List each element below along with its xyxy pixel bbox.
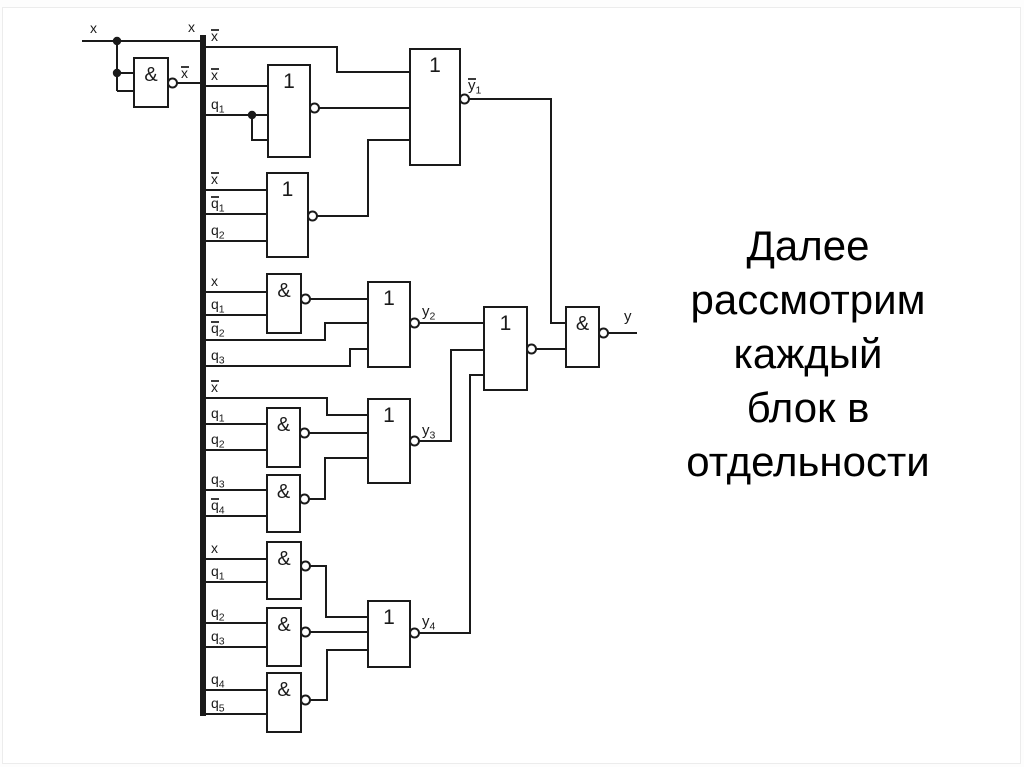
wire-tap-q3-to-or-y2 bbox=[206, 349, 368, 366]
inversion-bubble-and-y4-1 bbox=[301, 562, 310, 571]
wire-and-y4-1-out bbox=[301, 566, 368, 617]
inversion-bubble-and-y4-2 bbox=[301, 628, 310, 637]
wire-ybar1-to-and-y bbox=[460, 99, 566, 323]
gate-symbol-and-y4-2: & bbox=[277, 614, 291, 636]
label-tap-x-1: x bbox=[211, 273, 218, 289]
label-tap-q3-2: q3 bbox=[211, 471, 225, 491]
caption-text: Далеерассмотримкаждыйблок вотдельности bbox=[642, 219, 974, 489]
label-out-ybar1: y1 bbox=[468, 77, 482, 97]
wire-and-y3-2-out bbox=[300, 458, 368, 499]
gate-symbol-or-y: 1 bbox=[500, 312, 512, 335]
label-tap-x-2: x bbox=[211, 540, 218, 556]
gate-symbol-or-y4: 1 bbox=[383, 606, 395, 629]
label-tap-q1-3: q1 bbox=[211, 405, 225, 425]
inversion-bubble-and-y3-1 bbox=[300, 429, 309, 438]
inversion-bubble-and-y bbox=[599, 329, 608, 338]
inversion-bubble-or-2 bbox=[308, 212, 317, 221]
junction-dot bbox=[113, 69, 121, 77]
wire-y4-to-or-y bbox=[410, 375, 484, 633]
inversion-bubble-and-y3-2 bbox=[300, 495, 309, 504]
junction-dot bbox=[248, 111, 256, 119]
label-out-y3: y3 bbox=[422, 422, 436, 442]
caption-line: блок в bbox=[642, 381, 974, 435]
gate-symbol-and-y3-2: & bbox=[277, 481, 291, 503]
gate-symbol-and-y: & bbox=[576, 313, 590, 335]
label-tap-qbar4: q4 bbox=[211, 497, 225, 517]
inversion-bubble-or-y4 bbox=[410, 629, 419, 638]
gate-symbol-or-y3: 1 bbox=[383, 404, 395, 427]
gate-symbol-and-y3-1: & bbox=[277, 414, 291, 436]
inversion-bubble-and-y4-3 bbox=[301, 696, 310, 705]
caption-line: отдельности bbox=[642, 435, 974, 489]
wire-and-y4-3-out bbox=[301, 650, 368, 700]
gate-symbol-or-1: 1 bbox=[283, 70, 295, 93]
inversion-bubble-or-y2 bbox=[410, 319, 419, 328]
label-input-x: x bbox=[90, 20, 97, 36]
inversion-bubble-or-1 bbox=[310, 104, 319, 113]
junction-dot bbox=[113, 37, 121, 45]
gate-symbol-or-y2: 1 bbox=[383, 287, 395, 310]
label-tap-q5: q5 bbox=[211, 695, 225, 715]
caption-line: Далее bbox=[642, 219, 974, 273]
inversion-bubble-or-y3 bbox=[410, 437, 419, 446]
label-out-y4: y4 bbox=[422, 613, 436, 633]
label-tap-q4: q4 bbox=[211, 671, 225, 691]
label-bus-x: x bbox=[188, 19, 195, 35]
label-tap-qbar1: q1 bbox=[211, 195, 225, 215]
wire-q1-branch-to-or-1 bbox=[252, 115, 268, 140]
gate-symbol-and-y4-3: & bbox=[277, 679, 291, 701]
inversion-bubble-or-y1 bbox=[460, 95, 469, 104]
gate-symbol-nand-x: & bbox=[144, 64, 158, 86]
label-tap-q2-3: q2 bbox=[211, 604, 225, 624]
inversion-bubble-nand-x bbox=[168, 79, 177, 88]
label-tap-q2-2: q2 bbox=[211, 431, 225, 451]
gate-symbol-and-y2: & bbox=[277, 280, 291, 302]
label-tap-q2-1: q2 bbox=[211, 222, 225, 242]
gate-symbol-and-y4-1: & bbox=[277, 548, 291, 570]
gate-symbol-or-y1: 1 bbox=[429, 54, 441, 77]
inversion-bubble-and-y2 bbox=[301, 295, 310, 304]
wire-or-2-out bbox=[308, 140, 410, 216]
caption-line: рассмотрим bbox=[642, 273, 974, 327]
label-tap-q3-1: q3 bbox=[211, 347, 225, 367]
label-out-y: y bbox=[624, 308, 632, 325]
label-tap-q3-3: q3 bbox=[211, 628, 225, 648]
label-out-y2: y2 bbox=[422, 303, 436, 323]
label-tap-q1-1: q1 bbox=[211, 96, 225, 116]
gate-symbol-or-2: 1 bbox=[282, 178, 294, 201]
label-tap-qbar2: q2 bbox=[211, 320, 225, 340]
label-tap-q1-4: q1 bbox=[211, 563, 225, 583]
caption-line: каждый bbox=[642, 327, 974, 381]
signal-bus bbox=[200, 35, 206, 716]
inversion-bubble-or-y bbox=[527, 345, 536, 354]
label-tap-q1-2: q1 bbox=[211, 296, 225, 316]
